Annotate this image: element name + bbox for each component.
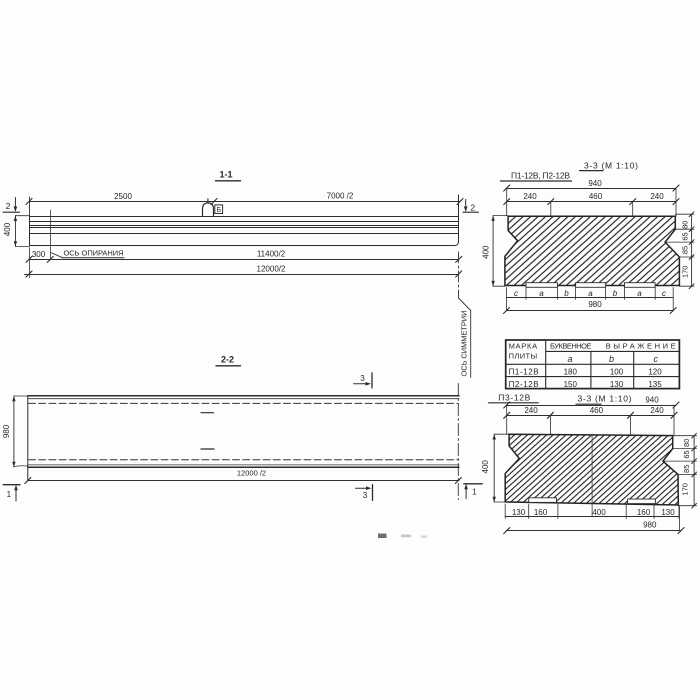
svg-text:ВЫРАЖЕНИЕ: ВЫРАЖЕНИЕ [606, 341, 676, 350]
svg-text:300: 300 [32, 250, 46, 259]
svg-text:c: c [514, 289, 518, 298]
svg-text:400: 400 [481, 460, 490, 474]
svg-text:ПЛИТЫ: ПЛИТЫ [509, 352, 538, 361]
svg-text:П2-12В: П2-12В [509, 380, 539, 389]
svg-text:b: b [564, 289, 569, 298]
svg-text:1: 1 [7, 490, 12, 499]
svg-text:160: 160 [637, 508, 651, 517]
svg-text:2: 2 [470, 203, 475, 213]
svg-text:240: 240 [524, 406, 538, 415]
svg-text:240: 240 [650, 192, 664, 201]
svg-text:240: 240 [650, 406, 664, 415]
svg-text:2: 2 [6, 201, 11, 211]
svg-text:980: 980 [2, 424, 11, 438]
svg-text:65: 65 [682, 450, 691, 458]
svg-text:7000 /2: 7000 /2 [327, 192, 354, 201]
svg-text:85: 85 [680, 246, 689, 254]
svg-text:180: 180 [564, 368, 578, 377]
svg-text:150: 150 [564, 380, 578, 389]
svg-text:130: 130 [610, 380, 624, 389]
svg-text:МАРКА: МАРКА [509, 342, 537, 351]
svg-text:130: 130 [512, 508, 526, 517]
svg-text:П1-12В, П2-12В: П1-12В, П2-12В [511, 170, 570, 180]
svg-text:80: 80 [680, 221, 689, 229]
svg-text:ОСЬ СИММЕТРИИ: ОСЬ СИММЕТРИИ [459, 311, 468, 377]
svg-text:b: b [609, 354, 614, 364]
svg-text:170: 170 [680, 266, 689, 279]
svg-text:400: 400 [3, 222, 12, 236]
svg-text:c: c [653, 354, 658, 364]
svg-text:160: 160 [534, 508, 548, 517]
svg-text:80: 80 [682, 439, 691, 447]
svg-text:ОСЬ ОПИРАНИЯ: ОСЬ ОПИРАНИЯ [64, 248, 124, 257]
svg-text:3: 3 [363, 491, 368, 500]
svg-text:3-3 (М 1:10): 3-3 (М 1:10) [584, 160, 638, 170]
svg-text:460: 460 [589, 192, 603, 201]
svg-text:2500: 2500 [114, 192, 132, 201]
svg-text:85: 85 [682, 465, 691, 473]
svg-text:120: 120 [648, 368, 662, 377]
svg-text:240: 240 [523, 192, 537, 201]
svg-text:460: 460 [590, 406, 604, 415]
svg-text:980: 980 [643, 520, 657, 529]
svg-text:2-2: 2-2 [221, 355, 234, 365]
svg-text:3: 3 [360, 374, 365, 383]
svg-text:1-1: 1-1 [219, 170, 232, 180]
svg-text:940: 940 [588, 179, 602, 188]
svg-text:П3-12В: П3-12В [498, 393, 530, 403]
svg-text:a: a [567, 354, 572, 364]
svg-text:П1-12В: П1-12В [509, 368, 539, 377]
svg-text:170: 170 [681, 483, 690, 496]
svg-text:1: 1 [472, 488, 477, 497]
svg-text:Б: Б [217, 207, 222, 214]
svg-text:c: c [662, 289, 666, 298]
svg-text:12000/2: 12000/2 [257, 265, 286, 274]
svg-text:135: 135 [648, 380, 662, 389]
svg-text:a: a [637, 289, 642, 298]
svg-text:980: 980 [588, 300, 602, 309]
svg-text:БУКВЕННОЕ: БУКВЕННОЕ [550, 341, 592, 350]
svg-text:400: 400 [482, 245, 491, 259]
svg-text:11400/2: 11400/2 [257, 250, 286, 259]
svg-text:b: b [613, 289, 618, 298]
svg-text:3-3 (М 1:10): 3-3 (М 1:10) [578, 394, 632, 404]
svg-text:12000 /2: 12000 /2 [237, 469, 266, 478]
svg-text:a: a [539, 289, 544, 298]
svg-text:400: 400 [592, 508, 606, 517]
svg-text:a: a [588, 289, 593, 298]
svg-text:940: 940 [645, 396, 659, 405]
svg-text:100: 100 [610, 368, 624, 377]
svg-text:65: 65 [680, 232, 689, 240]
svg-text:130: 130 [661, 508, 675, 517]
